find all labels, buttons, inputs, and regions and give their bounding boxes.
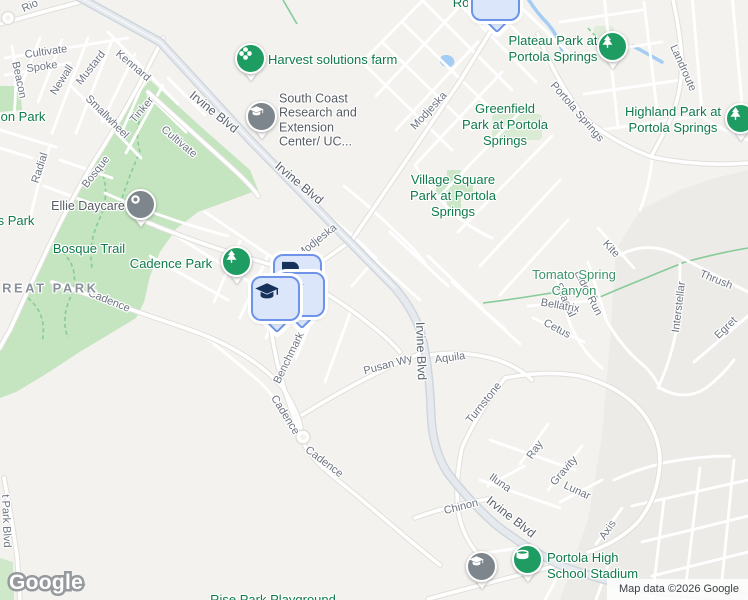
map-canvas[interactable]: RioCultivateSpokeBeaconNewallMustardKenn… (0, 0, 748, 600)
graduation-cap-icon (253, 278, 281, 306)
pins-layer (0, 0, 748, 600)
school-result-pin-top-body (471, 0, 520, 21)
graduation-cap-icon (468, 553, 485, 570)
highland-park-pin-body (725, 103, 748, 134)
harvest-solutions-farm-pin-body (235, 43, 266, 74)
pin-tail (135, 219, 147, 227)
pin-tail (607, 61, 619, 69)
flower-icon (237, 45, 254, 62)
pin-tail (735, 133, 747, 141)
google-logo-fill: Google (9, 571, 83, 595)
pin-tail (522, 574, 534, 582)
stadium-icon (514, 546, 531, 563)
tree-icon (599, 33, 616, 50)
cadence-park-pin-body (221, 246, 252, 277)
tree-icon (223, 248, 240, 265)
google-logo[interactable]: Google Google (9, 571, 83, 595)
school-result-pin-front-body (251, 276, 300, 321)
pin-tail (256, 131, 268, 139)
tree-icon (727, 105, 744, 122)
plateau-park-pin-body (597, 31, 628, 62)
pin-tail (245, 73, 257, 81)
portola-stadium-pin-body (512, 544, 543, 575)
south-coast-research-pin-body (246, 101, 277, 132)
pin-tail (231, 276, 243, 284)
graduation-cap-icon (473, 0, 501, 6)
ellie-daycare-pin-body (125, 189, 156, 220)
pin-tail (476, 581, 488, 589)
map-attribution: Map data ©2026 Google (607, 579, 748, 600)
school-pin-bottom-body (466, 551, 497, 582)
dot-icon (127, 191, 144, 208)
graduation-cap-icon (248, 103, 265, 120)
